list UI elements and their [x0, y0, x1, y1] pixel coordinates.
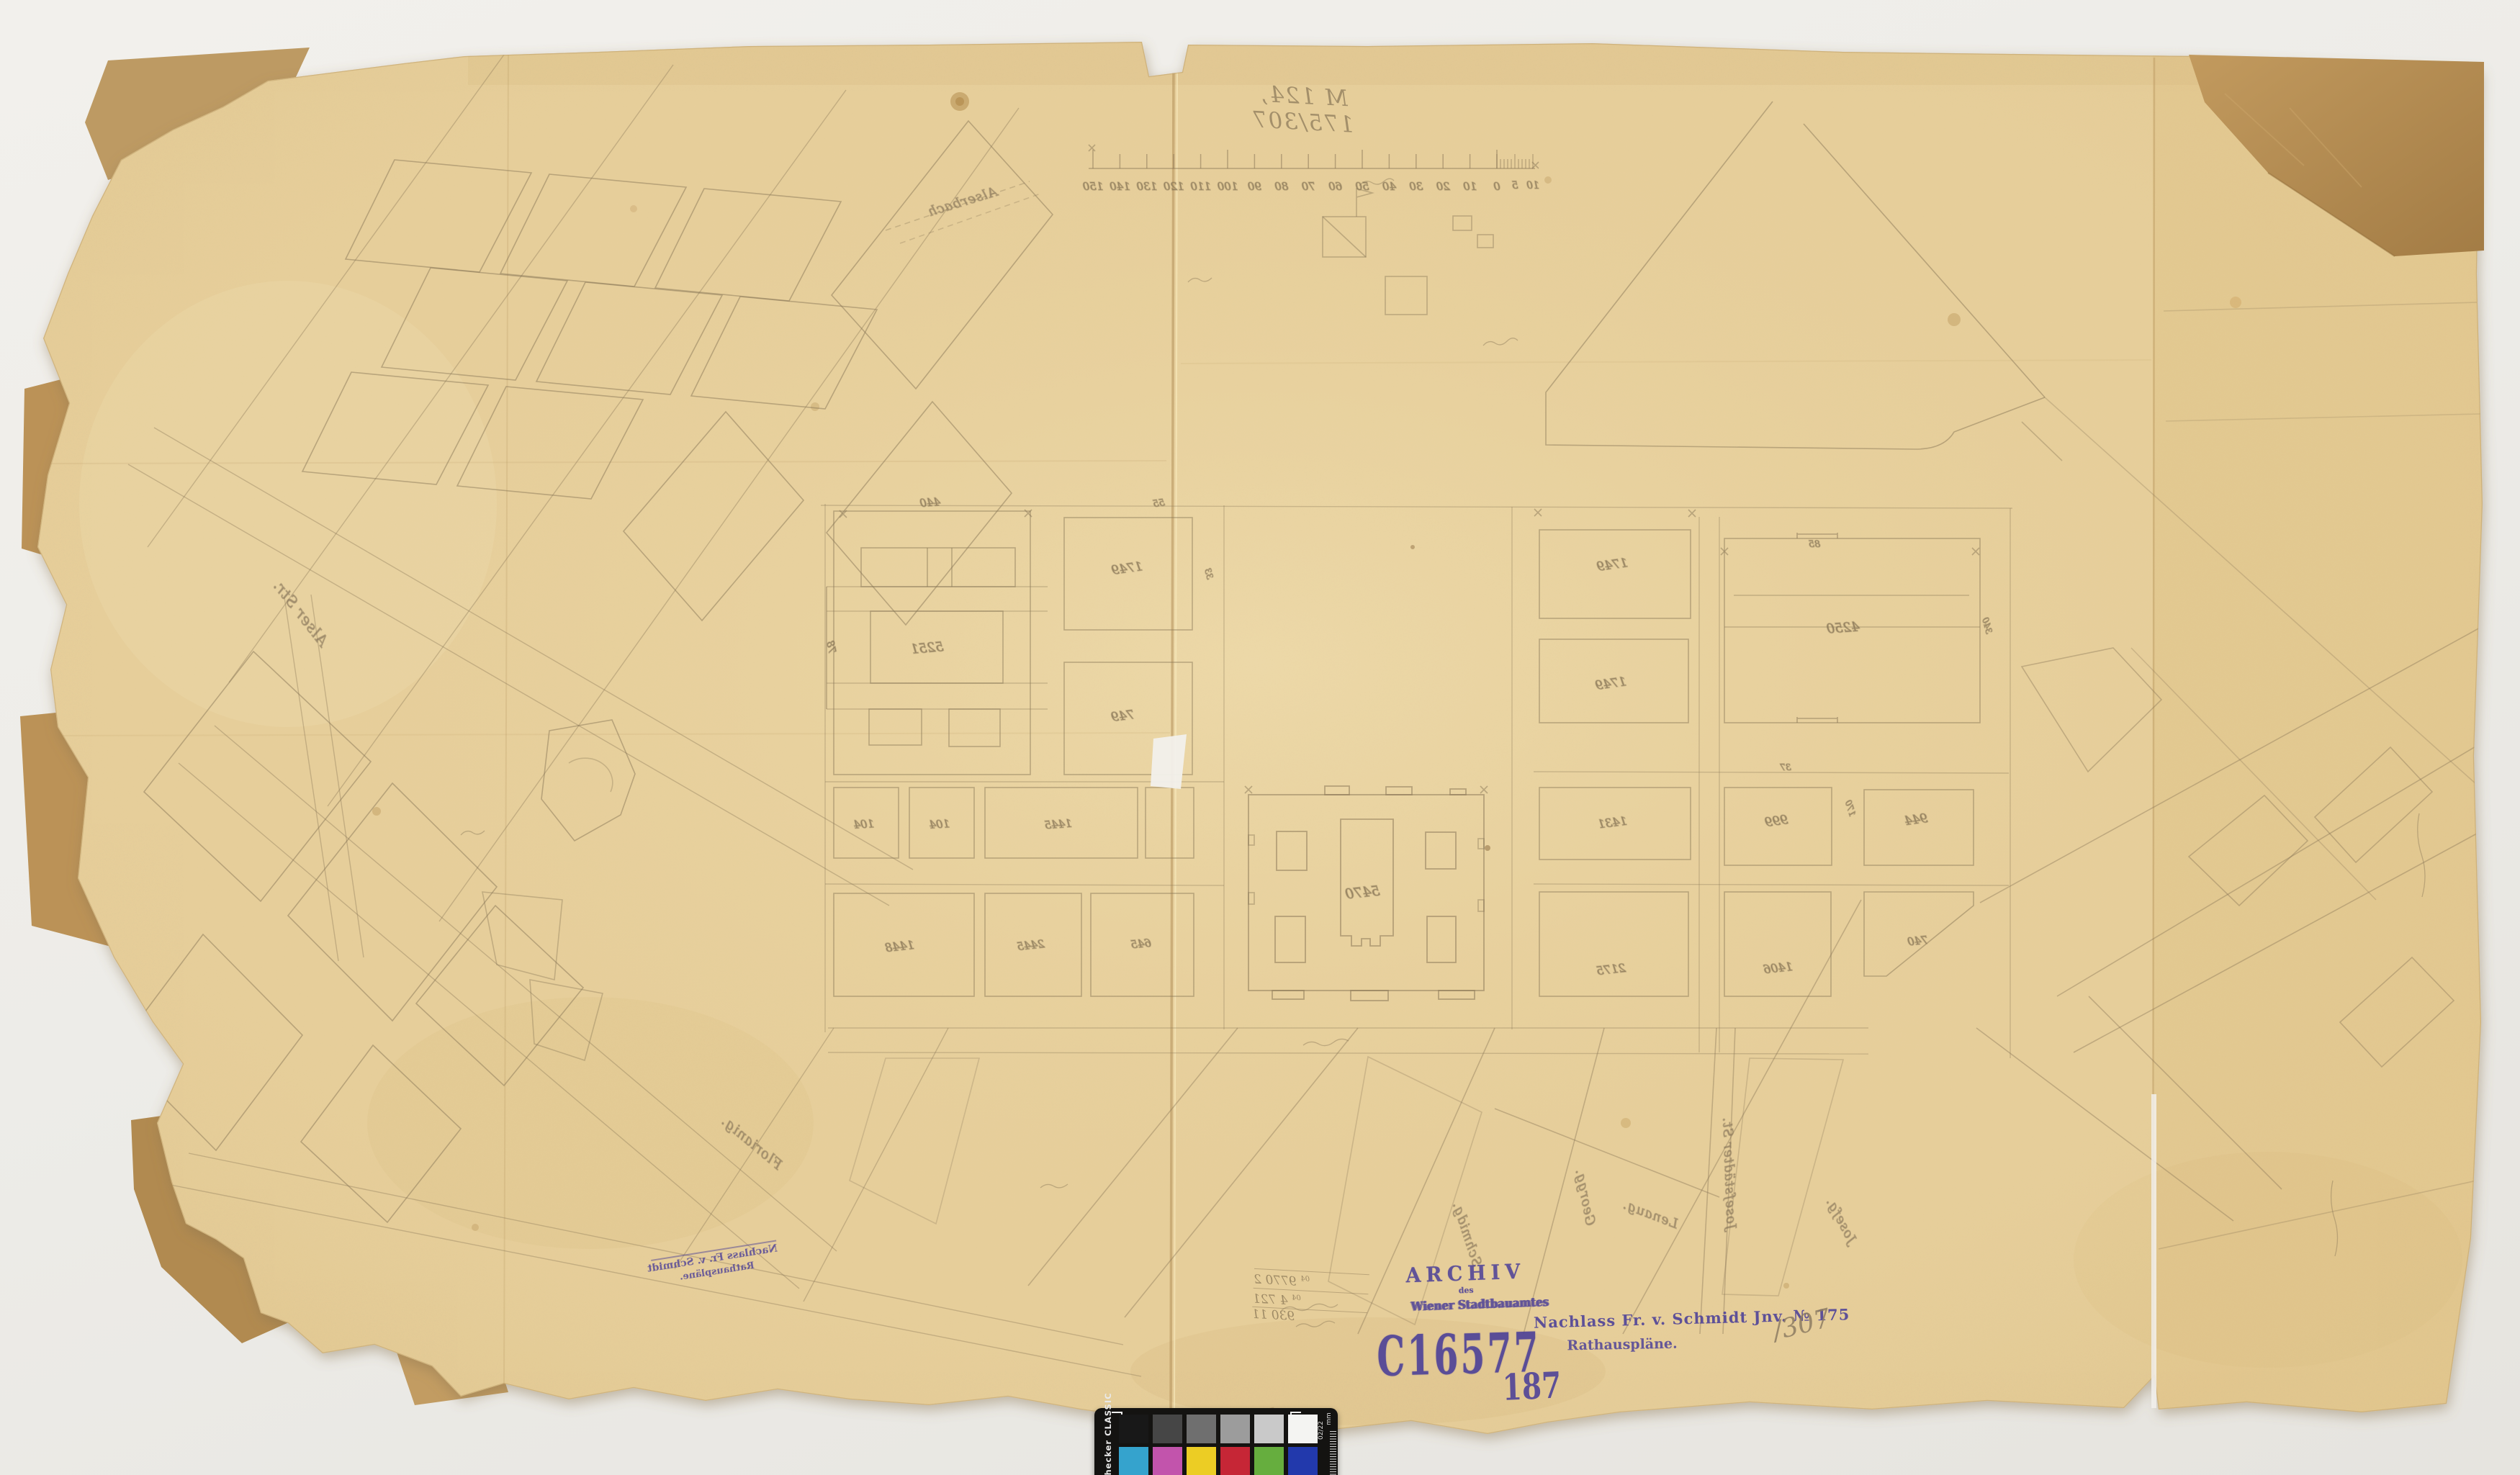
colorchecker-gray-row	[1119, 1415, 1318, 1443]
courtyard-block-left	[827, 511, 1048, 775]
scale-tick-label: 70	[1301, 180, 1315, 193]
block-number-label: 2175	[1596, 961, 1626, 978]
colorchecker-unit-text: mm	[1326, 1412, 1333, 1425]
block-number-label: 749	[1110, 708, 1135, 725]
tears	[1151, 734, 2156, 1408]
mirrored-offset-line1: Nachlass Fr. v. Schmidt	[651, 1240, 778, 1273]
block-number-label: 1749	[1596, 556, 1629, 574]
folded-corner-top-right	[2189, 55, 2484, 256]
block-number-label: 55	[1152, 497, 1165, 510]
block-number-label: 37	[1780, 762, 1791, 772]
scale-tick-label: 40	[1382, 180, 1397, 193]
block-number-label: 440	[919, 495, 941, 510]
block-number-label: 1431	[1597, 814, 1628, 831]
blocks-right-grid	[1539, 530, 1980, 996]
color-patch	[1119, 1415, 1148, 1443]
colorchecker-mm-ruler	[1330, 1431, 1336, 1475]
scale-tick-label: 150	[1082, 180, 1103, 193]
pencil-arithmetic: 04 9770 2 04 4 721 930 11	[1251, 1268, 1369, 1329]
scale-tick-label: 90	[1247, 180, 1261, 193]
scale-tick-label: 130	[1136, 180, 1157, 193]
scale-tick-label: 50	[1355, 180, 1369, 193]
scanned-map-sheet-view: 1501401301201101009080706050403020100510…	[0, 0, 2520, 1475]
block-number-label: 1448	[884, 938, 914, 955]
plan-labels: 4407852511749749553310410414451448244564…	[269, 184, 1994, 1268]
color-patch	[1288, 1415, 1318, 1443]
colorchecker-brand-text: rchecker CLASSIC	[1103, 1399, 1117, 1475]
block-number-label: 33	[1202, 567, 1215, 580]
scale-tick-label: 5	[1511, 180, 1518, 191]
block-number-label: 645	[1130, 937, 1152, 951]
scale-tick-label: 80	[1274, 180, 1289, 193]
block-number-label: 5251	[910, 639, 944, 657]
block-number-label: 340	[1980, 616, 1994, 635]
color-patch	[1220, 1447, 1250, 1475]
pencil-inventory-note: M 124, 175/307	[1223, 79, 1383, 139]
registration-bracket-icon	[1290, 1412, 1301, 1422]
map-scan-canvas: 1501401301201101009080706050403020100510…	[0, 0, 2520, 1475]
sheet-number-stamp: 187	[1502, 1363, 1562, 1409]
street-name-label: Schmidg.	[1449, 1200, 1485, 1269]
block-number-label: 104	[929, 817, 950, 831]
archive-stamp-line3: Wiener Stadtbauamtes	[1410, 1296, 1522, 1314]
street-name-label: Alser Str.	[269, 577, 332, 650]
street-name-label: Lenaug.	[1621, 1197, 1681, 1232]
street-lines-center	[821, 504, 2012, 1058]
mirrored-offset-line2: Rathauspläne.	[654, 1256, 780, 1286]
scale-tick-label: 30	[1409, 180, 1423, 193]
color-patch	[1153, 1415, 1182, 1443]
rathausplaene-stamp: Rathauspläne.	[1561, 1336, 1683, 1354]
color-patch	[1187, 1447, 1216, 1475]
street-name-label: Josefstädter St.	[1719, 1117, 1739, 1232]
scale-bar: 1501401301201101009080706050403020100510	[1082, 150, 1539, 193]
stains	[372, 92, 2241, 1289]
archive-stamp: ARCHIV des Wiener Stadtbauamtes	[1402, 1260, 1530, 1314]
scale-tick-label: 100	[1217, 180, 1238, 193]
color-patch	[1288, 1447, 1318, 1475]
scale-tick-label: 140	[1110, 180, 1130, 193]
street-name-label: Georgg.	[1572, 1168, 1598, 1227]
colorchecker-date-text: 02/22	[1318, 1421, 1325, 1440]
block-number-label: 740	[1907, 934, 1929, 949]
nachlass-stamp-line: Nachlass Fr. v. Schmidt Jnv. № 175	[1534, 1307, 1794, 1331]
block-number-label: 944	[1904, 811, 1929, 829]
scale-tick-label: 60	[1328, 180, 1343, 193]
archive-stamp-line2: des	[1403, 1284, 1529, 1297]
pencil-plan-drawing: 1501401301201101009080706050403020100510…	[117, 55, 2488, 1376]
sheet-edge	[37, 42, 2483, 1439]
block-number-label: 1406	[1763, 960, 1793, 976]
small-structures-top	[886, 181, 1493, 315]
survey-marks	[840, 145, 1979, 793]
pentagon-block	[1546, 102, 2062, 461]
scale-tick-label: 20	[1436, 180, 1451, 193]
street-name-label: Florianig.	[718, 1113, 786, 1173]
stamps-overlay: ARCHIV des Wiener Stadtbauamtes Nachlass…	[0, 0, 2520, 1475]
pencil-arithmetic-row: 04 4 721	[1252, 1288, 1368, 1313]
block-number-label: 1749	[1110, 559, 1143, 578]
blocks-left-grid	[834, 518, 1194, 996]
block-number-label: 4250	[1826, 619, 1860, 636]
mirrored-offset-stamp: Nachlass Fr. v. Schmidt Rathauspläne.	[651, 1240, 780, 1286]
colorchecker-color-row	[1119, 1447, 1318, 1475]
block-number-label: 2445	[1017, 937, 1046, 953]
color-patch	[1254, 1447, 1284, 1475]
paper-sheet: 1501401301201101009080706050403020100510…	[0, 0, 2520, 1475]
scale-tick-label: 10	[1526, 180, 1539, 191]
color-patch	[1254, 1415, 1284, 1443]
rathaus-building	[1248, 786, 1484, 1001]
block-number-label: 1749	[1594, 675, 1627, 693]
streets-bottom-fan	[850, 900, 1861, 1334]
block-number-label: 1445	[1044, 817, 1072, 832]
block-number-label: 85	[1809, 539, 1821, 550]
registration-bracket-icon	[1112, 1412, 1122, 1422]
diagonal-blocks	[117, 121, 1053, 1222]
block-number-label: 999	[1764, 813, 1789, 830]
scale-tick-label: 10	[1463, 180, 1477, 193]
block-number-label: 170	[1842, 798, 1858, 817]
scale-tick-label: 120	[1163, 180, 1184, 193]
pencil-fraction-307: /307	[1770, 1304, 1833, 1346]
scale-tick-label: 0	[1493, 180, 1500, 193]
color-patch	[1187, 1415, 1216, 1443]
color-patch	[1153, 1447, 1182, 1475]
street-lines-left	[128, 55, 1141, 1376]
block-number-label: 104	[853, 817, 875, 831]
inventory-number-stamp: C16577	[1377, 1320, 1541, 1389]
backing-paper-fragments	[20, 48, 508, 1405]
block-number-label: 78	[824, 640, 837, 655]
scale-tick-label: 110	[1190, 180, 1211, 193]
archive-stamp-line1: ARCHIV	[1402, 1260, 1529, 1288]
pencil-arithmetic-row: 930 11	[1251, 1307, 1367, 1328]
streets-right	[1976, 302, 2488, 1249]
colorchecker-card: rchecker CLASSIC mm 02/22	[1094, 1408, 1338, 1475]
illegible-annotations	[461, 179, 2425, 1327]
street-name-label: Alserbach	[925, 184, 1000, 220]
street-name-label: Josefg.	[1822, 1195, 1860, 1248]
pencil-arithmetic-row: 04 9770 2	[1254, 1268, 1369, 1294]
color-patch	[1119, 1447, 1148, 1475]
color-patch	[1220, 1415, 1250, 1443]
block-number-label: 5470	[1344, 883, 1380, 903]
fold-seams	[43, 42, 2154, 1429]
